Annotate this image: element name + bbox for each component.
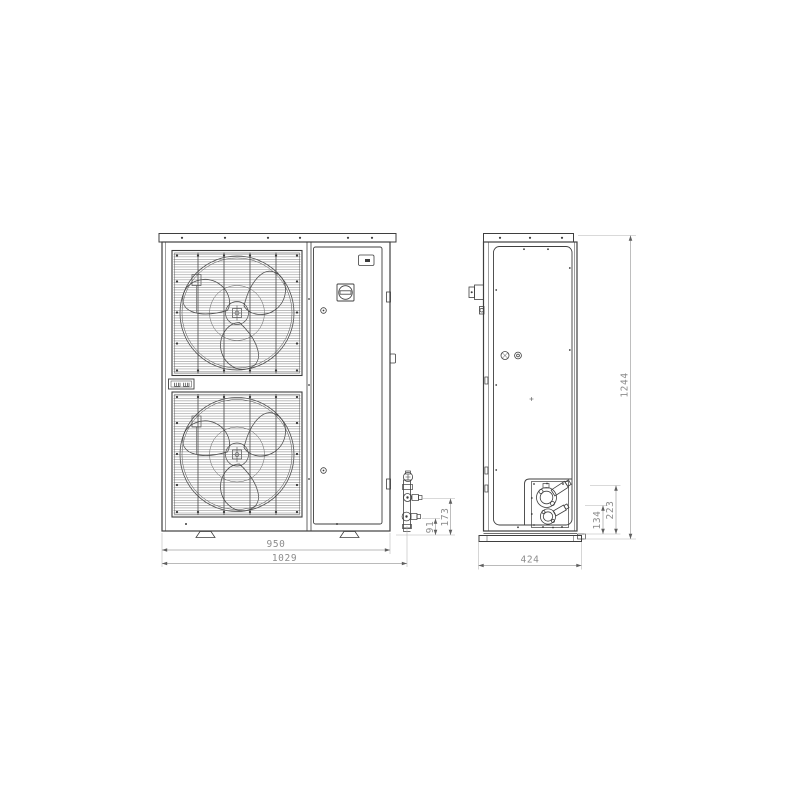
dim-label-173: 173 (440, 508, 451, 527)
fan-grille-upper (172, 251, 302, 376)
dim-side-depth: 424 (479, 555, 582, 568)
dim-front-suction-valve-height: 173 (440, 499, 452, 536)
side-bracket (469, 285, 484, 300)
dim-label-91: 91 (425, 521, 436, 534)
technical-drawing-page: 950 1029 173 91 1244 (0, 0, 800, 800)
dim-label-1244: 1244 (620, 372, 631, 397)
liquid-valve-side (540, 503, 569, 524)
cable-glands (501, 352, 521, 360)
fan-grille-lower (172, 392, 302, 517)
foot-right (340, 532, 359, 538)
front-view-drawing (159, 234, 422, 538)
suction-valve-side (537, 479, 572, 507)
dim-label-424: 424 (521, 555, 540, 566)
dim-front-liquid-valve-height: 91 (425, 519, 437, 536)
service-valves-front (402, 471, 422, 532)
dim-label-223: 223 (605, 501, 616, 520)
dim-label-134: 134 (592, 511, 603, 530)
dim-side-overall-height: 1244 (620, 236, 633, 540)
side-cabinet-body (484, 242, 578, 531)
side-top-cover (484, 234, 574, 243)
main-switch-icon (337, 284, 354, 301)
foot-left (196, 532, 215, 538)
dim-label-1029: 1029 (272, 553, 297, 564)
dim-label-950: 950 (267, 539, 286, 550)
dim-front-overall-width: 1029 (162, 553, 407, 565)
dim-side-upper-connection-height: 223 (605, 486, 618, 535)
side-knob (390, 354, 396, 363)
electrical-panel-door (314, 247, 383, 524)
dim-side-lower-connection-height: 134 (592, 506, 605, 535)
nameplate (359, 255, 375, 266)
front-panel-divider (307, 242, 311, 531)
front-top-cover (159, 234, 396, 243)
front-top-cover-screws (181, 237, 373, 239)
base-rail (479, 536, 582, 542)
condensing-unit-drawing: 950 1029 173 91 1244 (0, 0, 800, 800)
side-cover-panel (494, 247, 573, 526)
dim-front-mounting-width: 950 (162, 539, 390, 552)
terminal-label (169, 379, 195, 389)
center-mark (530, 397, 534, 401)
side-panel-screws (495, 248, 570, 471)
panel-screws (321, 308, 327, 474)
side-view-drawing (469, 234, 586, 542)
